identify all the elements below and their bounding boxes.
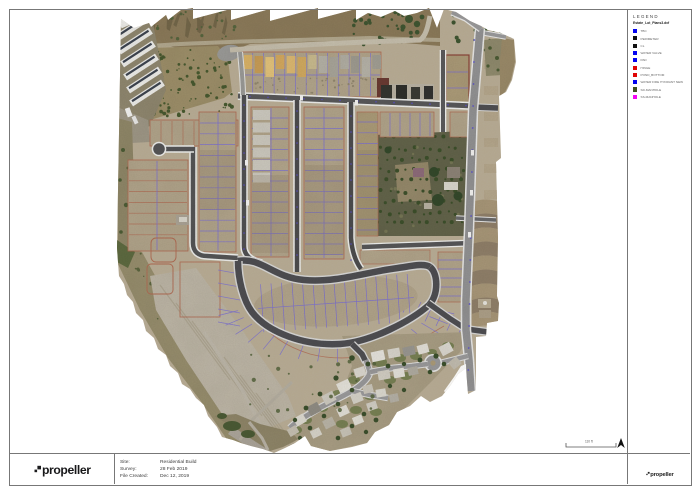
svg-text:110 ft: 110 ft [585,440,593,444]
svg-text:propeller: propeller [42,463,91,477]
svg-text:propeller: propeller [650,472,674,478]
